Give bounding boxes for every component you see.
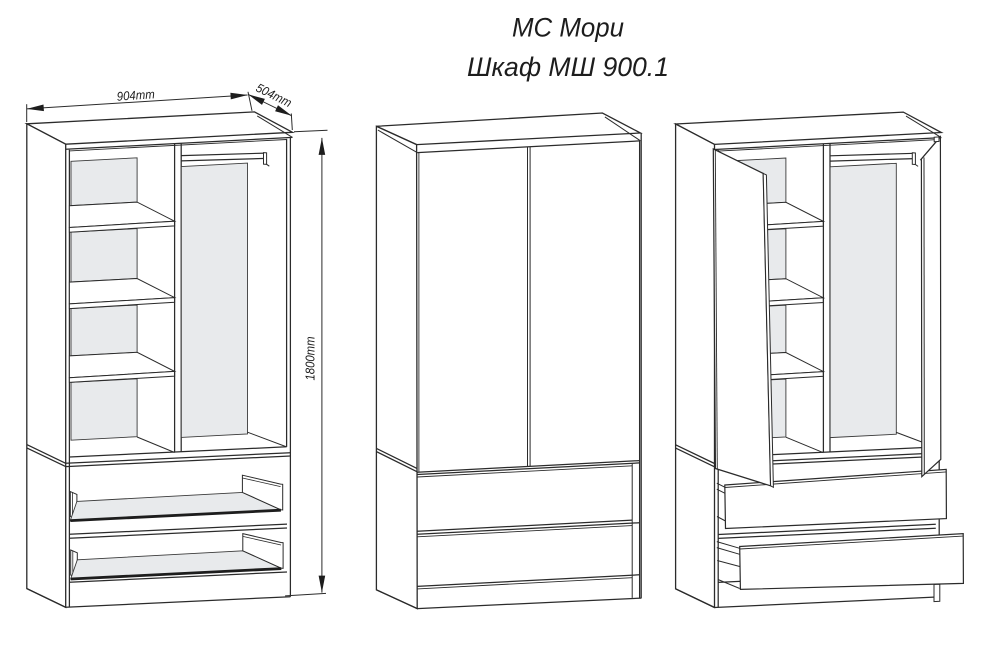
svg-text:504mm: 504mm (254, 81, 294, 110)
svg-text:Шкаф МШ 900.1: Шкаф МШ 900.1 (467, 52, 669, 82)
svg-text:904mm: 904mm (116, 87, 155, 103)
svg-text:1800mm: 1800mm (304, 337, 318, 381)
svg-text:МС Мори: МС Мори (512, 13, 624, 43)
